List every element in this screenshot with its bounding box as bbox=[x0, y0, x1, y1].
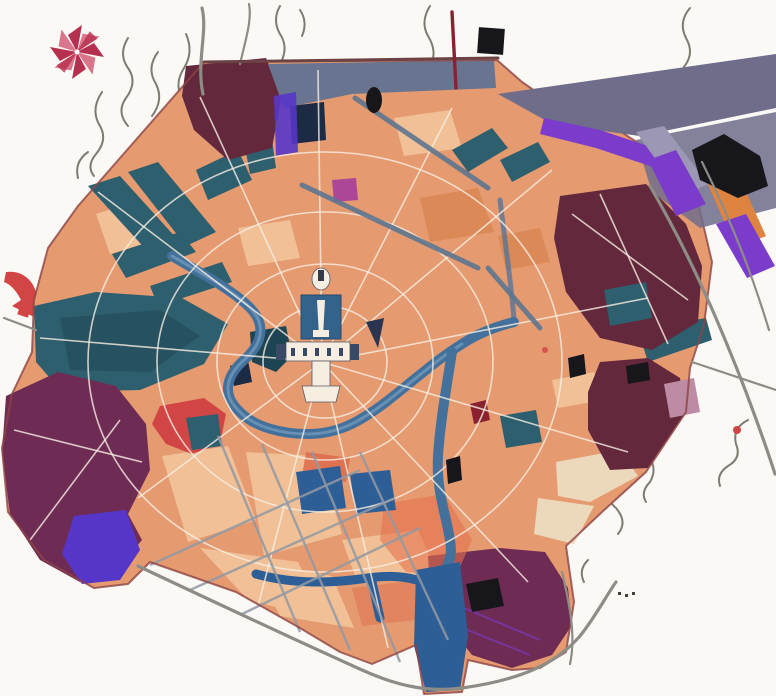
monument-speck bbox=[318, 270, 324, 281]
district-indigo-patch bbox=[274, 92, 298, 156]
map-page bbox=[0, 0, 776, 696]
axis-stem bbox=[312, 361, 330, 387]
black-mark bbox=[568, 354, 586, 378]
colonnade-speck bbox=[315, 348, 319, 356]
red-dot bbox=[542, 347, 548, 353]
black-mark bbox=[446, 456, 462, 484]
tiny-speck bbox=[632, 592, 635, 595]
flank-block bbox=[276, 344, 285, 360]
colonnade-speck bbox=[339, 348, 343, 356]
pink-patch-southeast bbox=[664, 378, 700, 418]
colonnade-speck bbox=[291, 348, 295, 356]
colonnade-speck bbox=[303, 348, 307, 356]
light-block bbox=[238, 220, 300, 266]
colonnade-speck bbox=[327, 348, 331, 356]
tiny-speck bbox=[618, 592, 621, 595]
teal-inset bbox=[186, 414, 222, 450]
black-square-top bbox=[477, 27, 505, 55]
city-plan-map bbox=[0, 0, 776, 696]
compass-center bbox=[75, 50, 80, 55]
palace-base bbox=[313, 330, 329, 337]
black-patch-south bbox=[466, 578, 504, 612]
tiny-speck bbox=[625, 594, 628, 597]
flank-block bbox=[350, 344, 359, 360]
red-dot-east bbox=[733, 426, 741, 434]
stadium-oval bbox=[366, 87, 382, 113]
axis-foot bbox=[302, 386, 340, 402]
